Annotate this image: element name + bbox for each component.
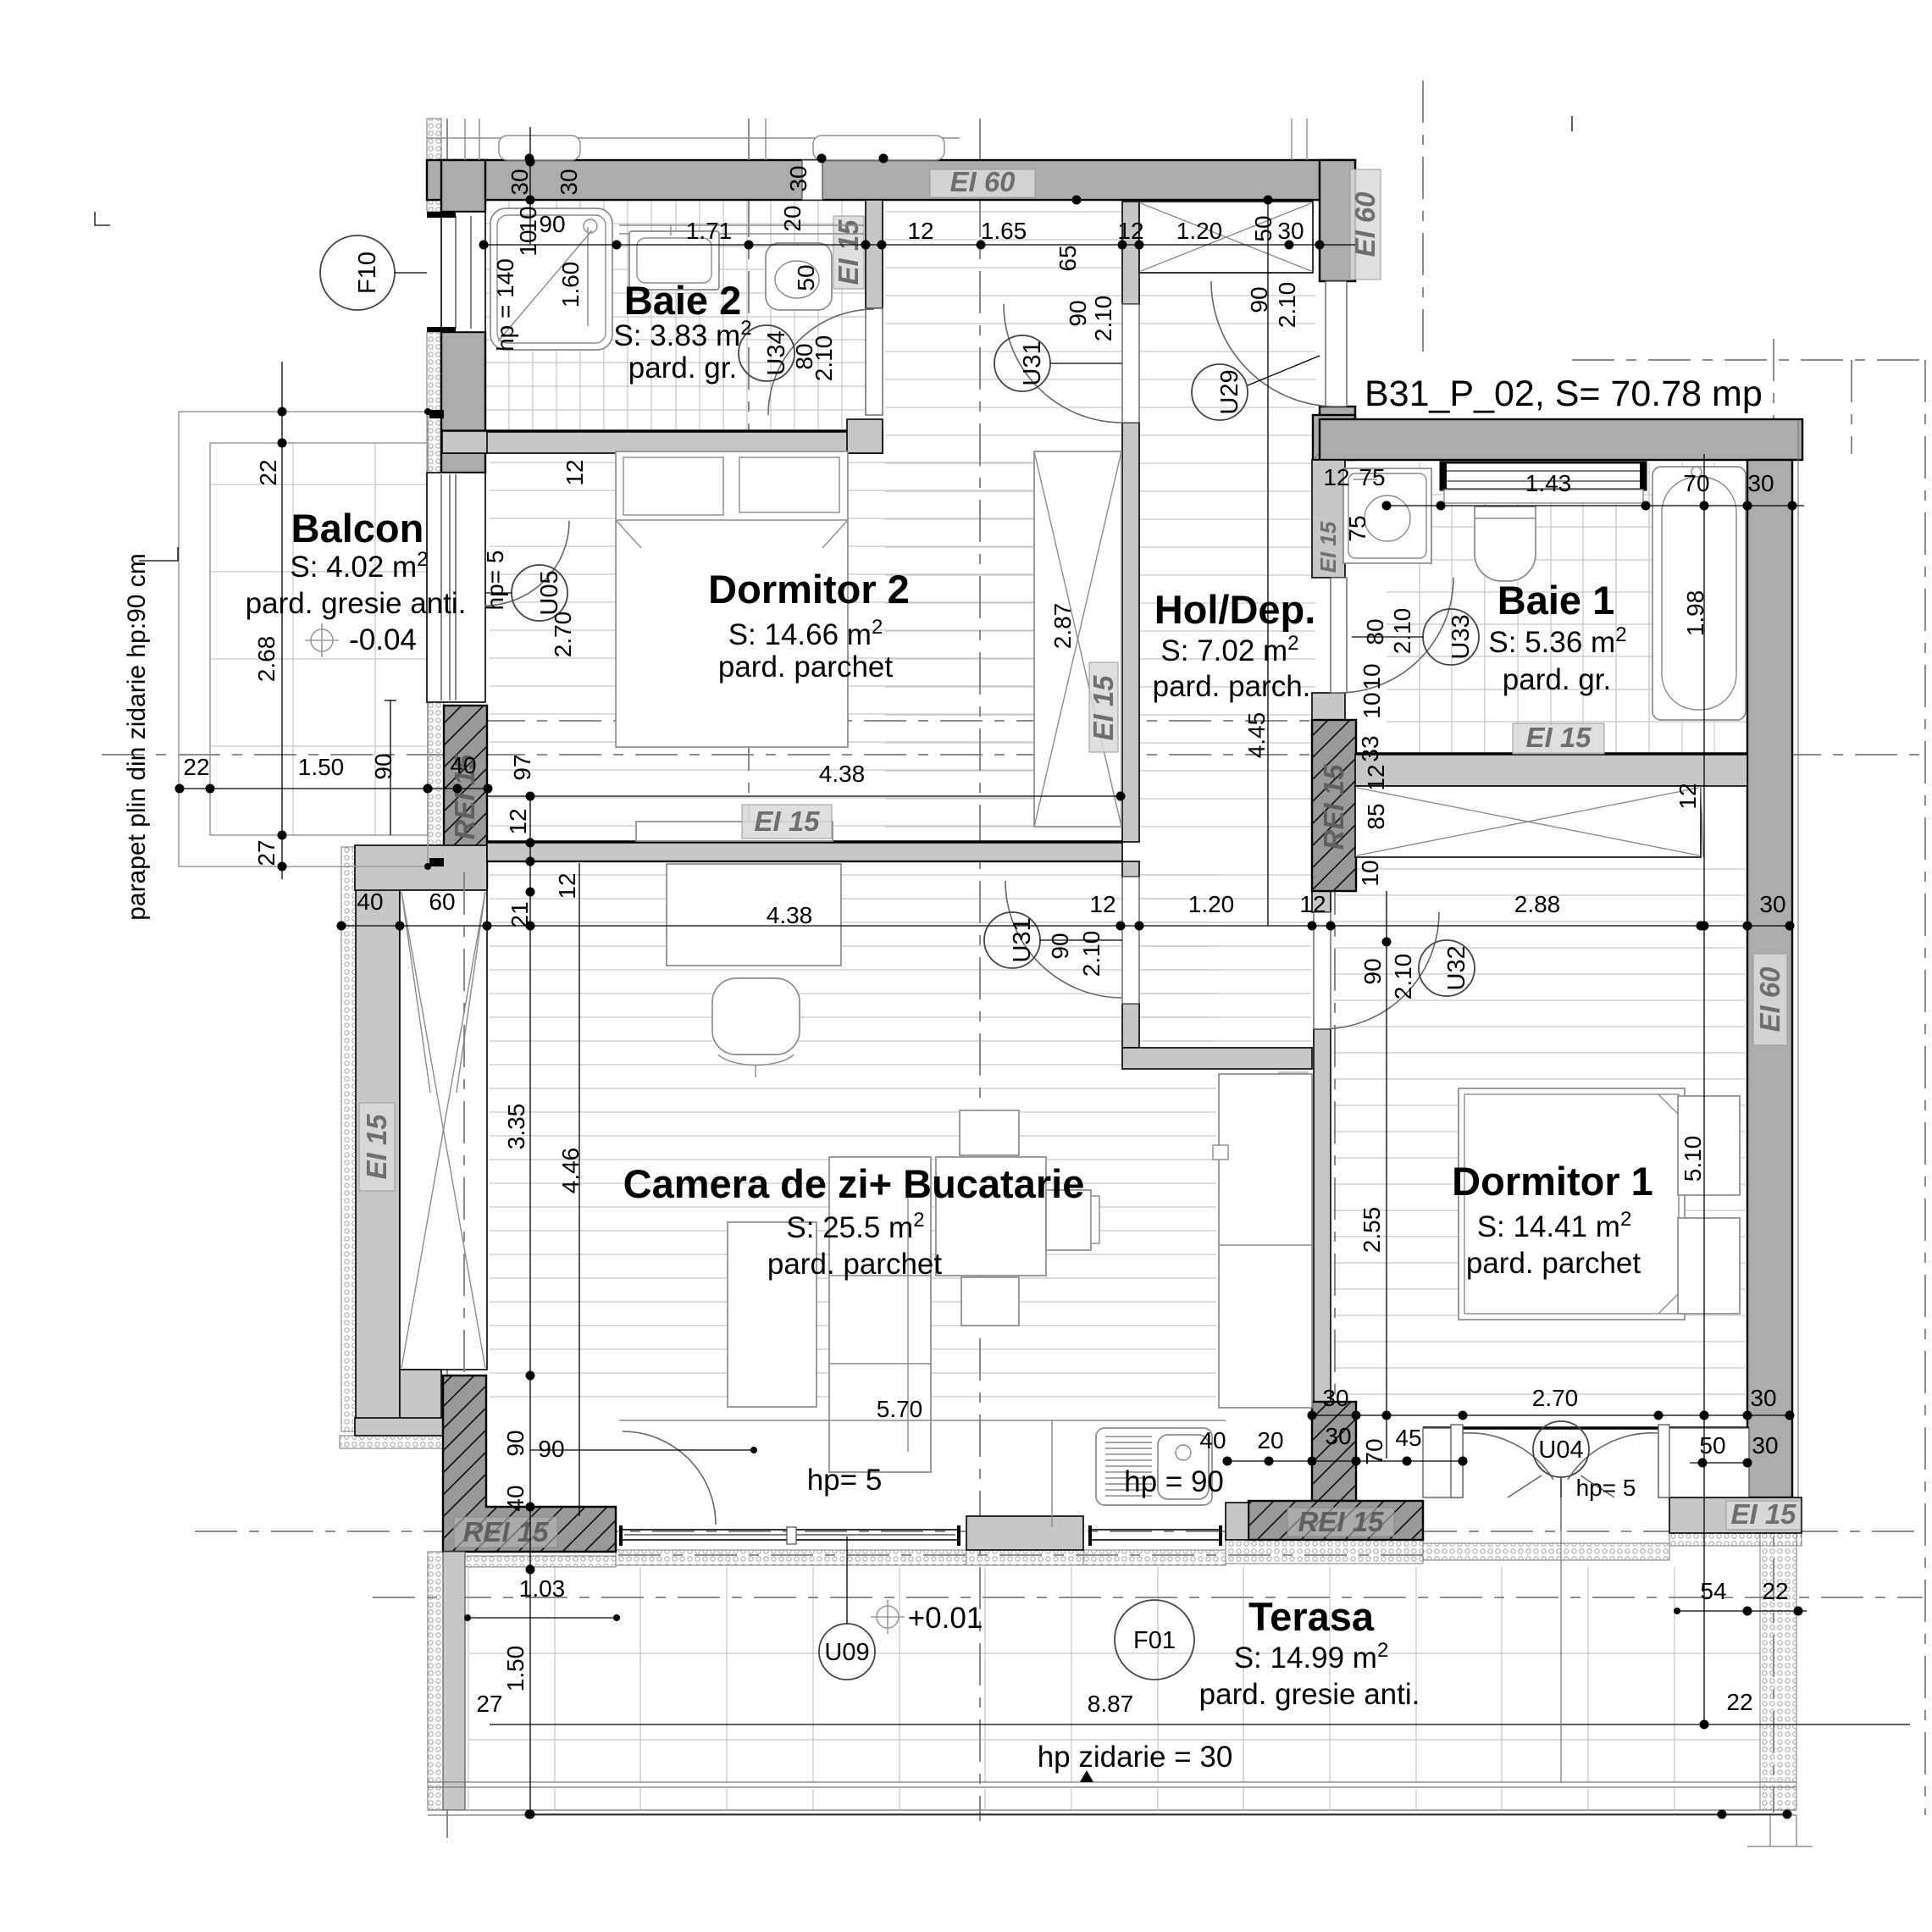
- svg-text:75: 75: [1344, 515, 1370, 541]
- svg-text:pard. parch.: pard. parch.: [1153, 670, 1311, 703]
- svg-text:Dormitor 1: Dormitor 1: [1452, 1159, 1653, 1204]
- svg-text:EI 15: EI 15: [1525, 722, 1592, 753]
- svg-text:hp= 5: hp= 5: [482, 551, 508, 611]
- svg-text:4.38: 4.38: [767, 902, 813, 928]
- svg-text:90: 90: [502, 1430, 529, 1456]
- svg-text:12: 12: [1299, 891, 1326, 917]
- svg-text:50: 50: [1250, 215, 1276, 241]
- svg-text:90: 90: [539, 211, 565, 237]
- svg-text:5.70: 5.70: [877, 1396, 923, 1422]
- svg-text:22: 22: [183, 754, 209, 780]
- svg-text:75: 75: [1359, 464, 1385, 490]
- svg-text:1.43: 1.43: [1525, 470, 1572, 496]
- svg-text:2.70: 2.70: [550, 612, 576, 658]
- svg-text:Baie 2: Baie 2: [624, 278, 741, 323]
- svg-text:40: 40: [450, 752, 476, 778]
- svg-text:pard. gresie anti.: pard. gresie anti.: [1199, 1678, 1420, 1711]
- svg-text:2.10: 2.10: [1090, 296, 1116, 342]
- svg-text:12: 12: [1089, 891, 1115, 917]
- svg-text:+0.01: +0.01: [908, 1602, 983, 1635]
- svg-text:30: 30: [1747, 470, 1774, 496]
- svg-text:Dormitor 2: Dormitor 2: [708, 567, 910, 612]
- svg-text:20: 20: [779, 205, 805, 231]
- svg-text:80: 80: [1362, 618, 1388, 645]
- svg-text:hp = 90: hp = 90: [1124, 1465, 1224, 1498]
- svg-text:pard. parchet: pard. parchet: [767, 1248, 943, 1281]
- svg-text:Balcon: Balcon: [291, 506, 424, 551]
- svg-text:hp= 5: hp= 5: [807, 1464, 883, 1497]
- svg-text:20: 20: [1257, 1427, 1283, 1453]
- svg-text:EI 15: EI 15: [833, 219, 864, 285]
- svg-text:S: 14.99 m2: S: 14.99 m2: [1234, 1639, 1389, 1675]
- svg-text:Baie 1: Baie 1: [1497, 578, 1614, 623]
- svg-text:pard. parchet: pard. parchet: [718, 650, 894, 684]
- svg-text:8.87: 8.87: [1088, 1691, 1134, 1717]
- svg-text:30: 30: [785, 165, 811, 191]
- svg-text:30: 30: [1750, 1385, 1776, 1411]
- svg-text:S: 7.02 m2: S: 7.02 m2: [1160, 632, 1298, 668]
- svg-text:S: 5.36 m2: S: 5.36 m2: [1488, 623, 1626, 660]
- svg-text:S: 3.83 m2: S: 3.83 m2: [613, 317, 751, 353]
- svg-text:U29: U29: [1216, 369, 1243, 414]
- svg-text:30: 30: [1322, 1385, 1348, 1411]
- svg-text:97: 97: [509, 754, 535, 780]
- svg-text:27: 27: [253, 839, 280, 866]
- svg-text:12: 12: [562, 459, 588, 485]
- svg-text:1.50: 1.50: [502, 1646, 529, 1692]
- svg-text:1.03: 1.03: [519, 1575, 566, 1602]
- svg-text:4.45: 4.45: [1243, 712, 1270, 759]
- svg-text:12: 12: [554, 872, 580, 899]
- svg-text:2.10: 2.10: [811, 335, 837, 382]
- svg-text:10: 10: [1357, 860, 1383, 886]
- svg-text:27: 27: [476, 1691, 502, 1717]
- svg-text:10: 10: [1359, 692, 1385, 718]
- svg-text:22: 22: [255, 459, 281, 485]
- svg-text:1.65: 1.65: [981, 218, 1027, 244]
- svg-text:40: 40: [357, 888, 383, 915]
- svg-text:12: 12: [1323, 464, 1349, 490]
- svg-text:hp zidarie = 30: hp zidarie = 30: [1038, 1741, 1233, 1774]
- svg-text:S: 14.66 m2: S: 14.66 m2: [728, 616, 883, 652]
- svg-text:REI 15: REI 15: [1298, 1506, 1385, 1537]
- svg-text:3.35: 3.35: [503, 1104, 529, 1150]
- svg-text:2.88: 2.88: [1514, 891, 1561, 917]
- svg-text:-0.04: -0.04: [349, 623, 417, 656]
- svg-text:S: 14.41 m2: S: 14.41 m2: [1477, 1208, 1632, 1244]
- svg-text:12: 12: [1363, 764, 1389, 790]
- svg-text:5.10: 5.10: [1680, 1136, 1706, 1182]
- svg-text:2.68: 2.68: [253, 636, 280, 683]
- svg-text:F10: F10: [354, 252, 381, 294]
- svg-text:hp= 5: hp= 5: [1576, 1475, 1636, 1501]
- svg-text:EI 15: EI 15: [1088, 675, 1119, 741]
- svg-text:85: 85: [1363, 803, 1389, 829]
- svg-text:REI 15: REI 15: [463, 1516, 550, 1547]
- svg-text:10: 10: [515, 206, 541, 232]
- svg-text:33: 33: [1357, 735, 1383, 761]
- svg-text:U34: U34: [763, 330, 790, 375]
- svg-text:EI 60: EI 60: [949, 166, 1016, 197]
- svg-text:EI 15: EI 15: [1315, 521, 1341, 573]
- svg-text:22: 22: [1762, 1578, 1788, 1604]
- svg-text:60: 60: [429, 888, 455, 915]
- svg-text:EI 60: EI 60: [1349, 191, 1381, 257]
- svg-text:EI 60: EI 60: [1754, 966, 1785, 1032]
- svg-text:30: 30: [507, 169, 533, 195]
- svg-text:10: 10: [515, 230, 541, 256]
- svg-text:U05: U05: [536, 570, 563, 615]
- svg-text:EI 15: EI 15: [361, 1114, 392, 1180]
- svg-text:2.87: 2.87: [1049, 603, 1076, 650]
- svg-text:90: 90: [538, 1436, 564, 1462]
- svg-text:1.71: 1.71: [686, 218, 733, 244]
- svg-text:10: 10: [1359, 663, 1385, 689]
- svg-text:1.98: 1.98: [1682, 590, 1708, 637]
- svg-text:Terasa: Terasa: [1248, 1594, 1375, 1639]
- svg-text:40: 40: [1199, 1427, 1226, 1453]
- svg-text:pard. parchet: pard. parchet: [1466, 1247, 1641, 1280]
- svg-text:parapet plin din zidarie hp:90: parapet plin din zidarie hp:90 cm: [123, 553, 151, 921]
- svg-text:pard. gr.: pard. gr.: [1503, 663, 1611, 696]
- svg-text:40: 40: [502, 1485, 529, 1511]
- svg-text:30: 30: [1277, 218, 1304, 244]
- svg-text:Camera de zi+ Bucatarie: Camera de zi+ Bucatarie: [623, 1161, 1085, 1206]
- svg-text:70: 70: [1361, 1438, 1387, 1464]
- svg-text:90: 90: [1246, 286, 1272, 313]
- svg-text:90: 90: [1359, 958, 1386, 984]
- svg-text:Hol/Dep.: Hol/Dep.: [1154, 587, 1316, 632]
- svg-text:U31: U31: [1009, 917, 1036, 962]
- svg-text:1.20: 1.20: [1188, 891, 1235, 917]
- svg-text:S: 4.02 m2: S: 4.02 m2: [290, 548, 428, 584]
- svg-text:REI 15: REI 15: [1318, 764, 1349, 850]
- svg-text:4.38: 4.38: [819, 761, 866, 787]
- svg-text:1.60: 1.60: [557, 262, 584, 308]
- svg-text:90: 90: [370, 753, 396, 779]
- svg-text:21: 21: [507, 901, 533, 927]
- svg-text:U33: U33: [1448, 614, 1475, 659]
- svg-text:22: 22: [1726, 1689, 1752, 1715]
- svg-text:50: 50: [793, 264, 819, 291]
- svg-text:30: 30: [1759, 891, 1785, 917]
- svg-text:U09: U09: [824, 1639, 869, 1666]
- svg-text:EI 15: EI 15: [754, 805, 820, 837]
- svg-text:45: 45: [1395, 1425, 1421, 1451]
- svg-text:50: 50: [1699, 1432, 1725, 1459]
- svg-text:54: 54: [1700, 1578, 1726, 1604]
- svg-text:90: 90: [1047, 933, 1073, 959]
- svg-text:12: 12: [907, 218, 933, 244]
- svg-text:pard. gresie anti.: pard. gresie anti.: [246, 587, 467, 620]
- svg-text:30: 30: [556, 169, 582, 195]
- svg-text:U04: U04: [1538, 1437, 1583, 1464]
- svg-text:30: 30: [1752, 1432, 1778, 1459]
- svg-text:S: 25.5 m2: S: 25.5 m2: [786, 1209, 924, 1245]
- svg-text:65: 65: [1055, 245, 1081, 271]
- svg-text:2.10: 2.10: [1274, 282, 1300, 329]
- svg-text:B31_P_02, S= 70.78 mp: B31_P_02, S= 70.78 mp: [1365, 374, 1763, 414]
- svg-text:2.10: 2.10: [1389, 608, 1415, 655]
- svg-text:2.70: 2.70: [1532, 1385, 1579, 1411]
- svg-text:12: 12: [505, 808, 531, 834]
- svg-text:2.10: 2.10: [1078, 931, 1104, 977]
- svg-text:1.50: 1.50: [298, 754, 345, 780]
- svg-text:U32: U32: [1443, 945, 1470, 990]
- svg-text:70: 70: [1683, 470, 1709, 496]
- svg-text:30: 30: [1325, 1423, 1351, 1449]
- svg-text:2.55: 2.55: [1359, 1207, 1385, 1254]
- svg-text:2.10: 2.10: [1390, 954, 1416, 1000]
- svg-text:U31: U31: [1019, 340, 1046, 385]
- svg-text:F01: F01: [1133, 1627, 1176, 1654]
- svg-text:hp = 140: hp = 140: [492, 258, 518, 352]
- svg-text:1.20: 1.20: [1176, 218, 1223, 244]
- svg-text:12: 12: [1675, 783, 1701, 809]
- svg-text:90: 90: [1065, 300, 1091, 326]
- svg-text:12: 12: [1117, 218, 1143, 244]
- svg-text:pard. gr.: pard. gr.: [628, 352, 737, 385]
- svg-text:EI 15: EI 15: [1730, 1498, 1796, 1530]
